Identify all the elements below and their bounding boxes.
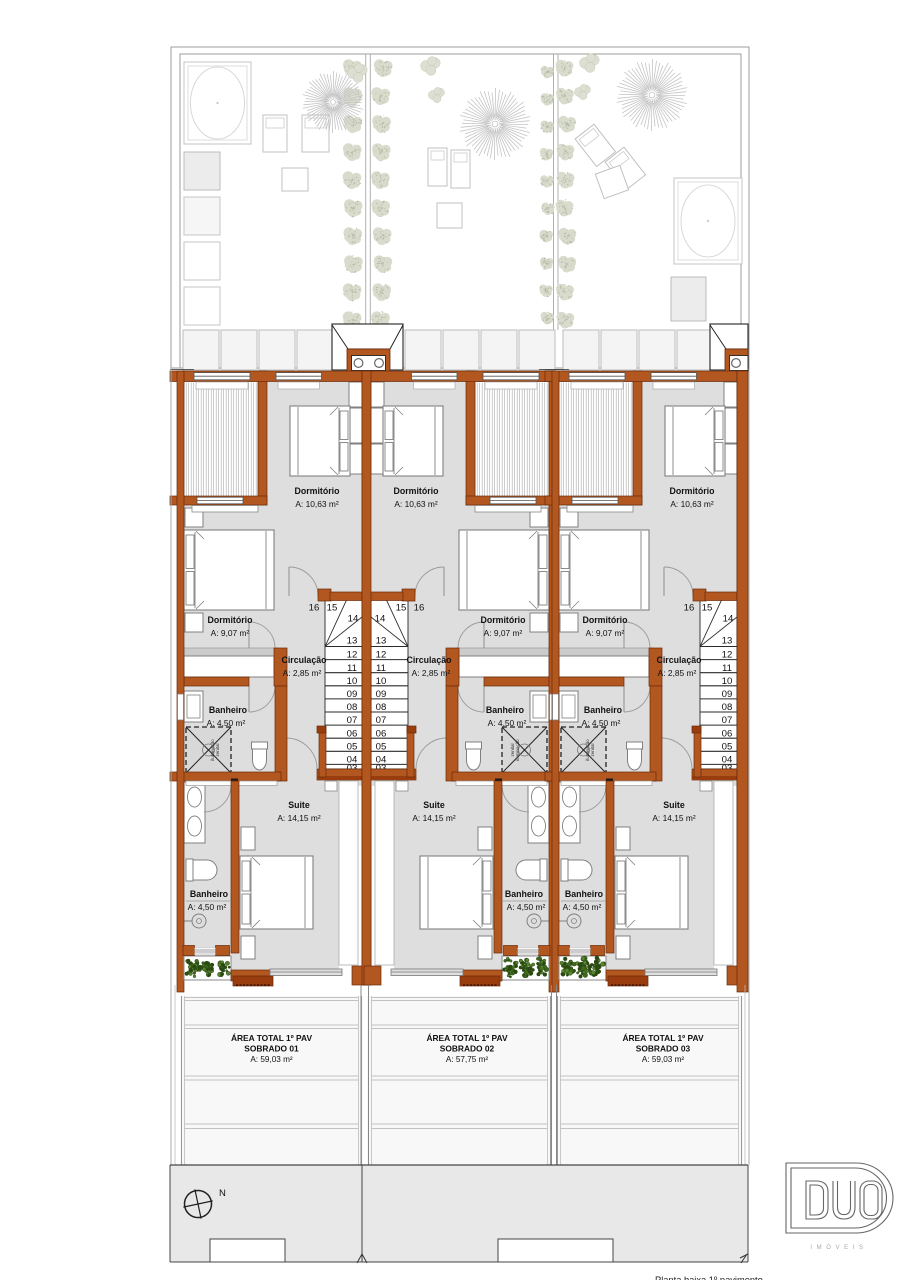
svg-text:A: 59,03 m²: A: 59,03 m²: [642, 1055, 685, 1064]
svg-text:11: 11: [722, 663, 732, 674]
svg-text:A: 59,03 m²: A: 59,03 m²: [250, 1055, 293, 1064]
svg-text:14: 14: [723, 614, 734, 625]
svg-text:04: 04: [347, 755, 358, 766]
svg-text:09: 09: [722, 689, 733, 700]
svg-text:11: 11: [376, 663, 386, 674]
svg-text:Dormitório: Dormitório: [208, 615, 254, 625]
svg-text:Banheiro: Banheiro: [190, 889, 229, 899]
svg-text:SOBRADO 02: SOBRADO 02: [440, 1044, 495, 1054]
svg-text:A: 4,50 m²: A: 4,50 m²: [563, 902, 602, 912]
svg-text:Suite: Suite: [423, 800, 445, 810]
svg-text:06: 06: [376, 728, 387, 739]
svg-text:A: 2,85 m²: A: 2,85 m²: [283, 668, 322, 678]
svg-text:14: 14: [375, 614, 386, 625]
svg-text:Dormitório: Dormitório: [670, 486, 716, 496]
svg-text:A: 10,63 m²: A: 10,63 m²: [670, 499, 714, 509]
svg-text:A: 14,15 m²: A: 14,15 m²: [652, 813, 696, 823]
svg-text:10: 10: [376, 676, 387, 687]
svg-text:07: 07: [722, 715, 733, 726]
svg-text:A: 57,75 m²: A: 57,75 m²: [446, 1055, 489, 1064]
svg-text:11: 11: [347, 663, 357, 674]
svg-text:09: 09: [347, 689, 358, 700]
svg-text:06: 06: [722, 728, 733, 739]
svg-text:Suite: Suite: [288, 800, 310, 810]
svg-text:iluminação: iluminação: [515, 739, 520, 761]
svg-text:zenital: zenital: [590, 743, 595, 756]
svg-text:ÁREA TOTAL 1º PAV: ÁREA TOTAL 1º PAV: [622, 1032, 703, 1043]
svg-text:10: 10: [722, 676, 733, 687]
svg-text:Circulação: Circulação: [407, 655, 453, 665]
svg-text:Planta baixa 1º pavimento: Planta baixa 1º pavimento: [655, 1275, 763, 1280]
svg-text:07: 07: [347, 715, 358, 726]
svg-text:Circulação: Circulação: [282, 655, 328, 665]
svg-text:ÁREA TOTAL 1º PAV: ÁREA TOTAL 1º PAV: [231, 1032, 312, 1043]
svg-text:Dormitório: Dormitório: [481, 615, 527, 625]
svg-text:Banheiro: Banheiro: [486, 705, 525, 715]
svg-text:A: 2,85 m²: A: 2,85 m²: [658, 668, 697, 678]
svg-text:15: 15: [327, 603, 338, 614]
svg-text:A: 14,15 m²: A: 14,15 m²: [412, 813, 456, 823]
svg-text:A: 9,07 m²: A: 9,07 m²: [211, 628, 250, 638]
svg-text:Banheiro: Banheiro: [584, 705, 623, 715]
svg-text:SOBRADO 01: SOBRADO 01: [244, 1044, 299, 1054]
svg-text:13: 13: [347, 636, 358, 647]
svg-text:04: 04: [376, 755, 387, 766]
svg-text:Banheiro: Banheiro: [505, 889, 544, 899]
svg-text:06: 06: [347, 728, 358, 739]
svg-text:09: 09: [376, 689, 387, 700]
svg-text:05: 05: [347, 741, 358, 752]
svg-text:15: 15: [702, 603, 713, 614]
svg-text:IMÓVEIS: IMÓVEIS: [810, 1244, 867, 1251]
svg-text:13: 13: [722, 636, 733, 647]
svg-text:A: 14,15 m²: A: 14,15 m²: [277, 813, 321, 823]
svg-text:16: 16: [309, 603, 320, 614]
svg-text:Suite: Suite: [663, 800, 685, 810]
svg-text:Circulação: Circulação: [657, 655, 703, 665]
svg-text:A: 4,50 m²: A: 4,50 m²: [188, 902, 227, 912]
svg-text:16: 16: [684, 603, 695, 614]
svg-text:12: 12: [722, 650, 733, 661]
svg-text:05: 05: [376, 741, 387, 752]
svg-text:zenital: zenital: [215, 743, 220, 756]
svg-text:A: 10,63 m²: A: 10,63 m²: [394, 499, 438, 509]
svg-text:Dormitório: Dormitório: [295, 486, 341, 496]
svg-text:SOBRADO 03: SOBRADO 03: [636, 1044, 691, 1054]
svg-text:08: 08: [376, 702, 387, 713]
svg-text:07: 07: [376, 715, 387, 726]
svg-text:A: 9,07 m²: A: 9,07 m²: [586, 628, 625, 638]
svg-text:Dormitório: Dormitório: [583, 615, 629, 625]
svg-text:13: 13: [376, 636, 387, 647]
svg-text:16: 16: [414, 603, 425, 614]
svg-text:A: 4,50 m²: A: 4,50 m²: [582, 718, 621, 728]
svg-text:A: 2,85 m²: A: 2,85 m²: [412, 668, 451, 678]
svg-text:Banheiro: Banheiro: [209, 705, 248, 715]
svg-text:A: 10,63 m²: A: 10,63 m²: [295, 499, 339, 509]
svg-text:A: 4,50 m²: A: 4,50 m²: [507, 902, 546, 912]
svg-text:15: 15: [396, 603, 407, 614]
svg-text:12: 12: [376, 650, 387, 661]
svg-text:12: 12: [347, 650, 358, 661]
svg-text:08: 08: [722, 702, 733, 713]
svg-text:zenital: zenital: [510, 743, 515, 756]
svg-text:A: 9,07 m²: A: 9,07 m²: [484, 628, 523, 638]
svg-text:ÁREA TOTAL 1º PAV: ÁREA TOTAL 1º PAV: [426, 1032, 507, 1043]
svg-text:14: 14: [348, 614, 359, 625]
svg-text:Dormitório: Dormitório: [394, 486, 440, 496]
svg-text:10: 10: [347, 676, 358, 687]
svg-text:A: 4,50 m²: A: 4,50 m²: [207, 718, 246, 728]
svg-text:N: N: [219, 1188, 226, 1199]
svg-text:Banheiro: Banheiro: [565, 889, 604, 899]
svg-text:04: 04: [722, 755, 733, 766]
svg-text:05: 05: [722, 741, 733, 752]
svg-text:A: 4,50 m²: A: 4,50 m²: [488, 718, 527, 728]
svg-text:08: 08: [347, 702, 358, 713]
